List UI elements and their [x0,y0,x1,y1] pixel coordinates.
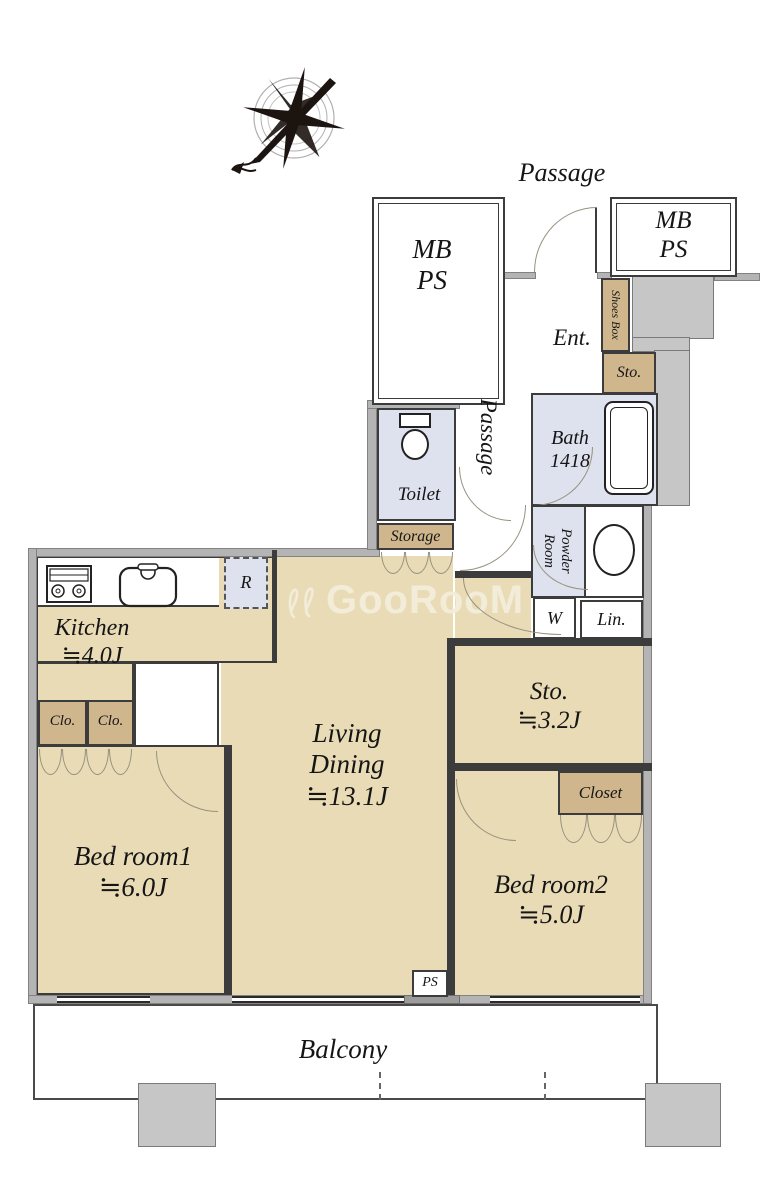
wall-kitchen-living [272,550,277,663]
compass-rose-icon [226,58,358,190]
washbasin-icon [593,524,635,576]
stove-icon [46,565,92,603]
balcony-divider-right [544,1072,548,1100]
window-living [232,996,404,1003]
wall-west [28,548,37,1004]
storage-room-floor [455,646,643,763]
entry-storage-box [602,352,656,394]
linen-box [580,600,643,639]
wall-east [643,505,652,1004]
refrigerator-space [224,557,268,609]
ps-box [412,970,448,997]
balcony-divider-left [379,1072,383,1100]
entrance-label: Ent. [536,322,608,354]
closet-folding-door [560,815,642,843]
storage-folding-door [381,552,453,574]
sink-icon [118,562,178,608]
balcony-pillar-left [138,1083,216,1147]
wall-storage-room-north [447,638,652,646]
clo-left-box [38,700,87,746]
floor-plan: GooRooM MB PS MB PS Ent. Shoes Box Sto. [0,0,769,1200]
concrete-block-column [654,350,690,506]
passage-door-arc [460,505,526,571]
shoes-box [601,278,630,352]
wall-storage-room-south [447,763,652,771]
window-bedroom1 [57,996,150,1003]
bedroom1-closet-folding-door [39,749,132,775]
clo-right-box [87,700,134,746]
living-dining-floor-main [221,663,453,995]
toilet-bowl-icon [401,429,429,460]
mb-ps-right-box [610,197,737,277]
outside-passage-label: Passage [500,156,624,190]
balcony-area [33,1004,658,1100]
closet-box [558,771,643,815]
wall-toilet-west [367,400,377,550]
balcony-pillar-right [645,1083,721,1147]
kitchen-pass-notch [134,662,219,748]
wall-top-west [28,548,380,557]
wall-passage-living [455,571,533,578]
mb-ps-left-box [372,197,505,405]
toilet-tank-icon [399,413,431,428]
wall-bedroom1-living [224,745,232,995]
entrance-door-arc [534,207,597,272]
hall-storage-box [377,523,454,550]
wall-living-east [447,638,455,995]
window-bedroom2 [490,996,640,1003]
bathtub-icon [604,401,654,495]
